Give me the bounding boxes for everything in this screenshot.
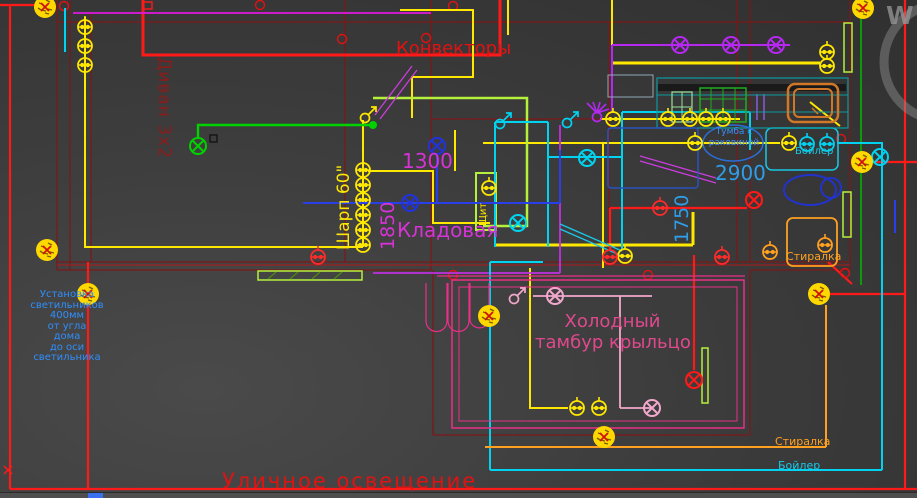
wiring-lightpink [533,296,652,408]
wiring-blue [303,125,895,233]
junction-box-symbol [478,305,500,327]
junction-box-symbol [34,0,56,18]
socket-symbol [606,108,620,126]
socket-symbol [688,132,702,150]
junction-box-symbol [808,283,830,305]
switch-symbol [496,113,512,129]
kitchen-counter [608,75,848,128]
light-symbol [746,192,762,208]
light-symbol [510,215,526,231]
socket-symbol [763,241,777,259]
junction-box-symbol [36,239,58,261]
window-bottom-edge [0,492,917,498]
socket-symbol [618,245,632,263]
porch-outline [426,276,745,428]
wiring-orange [485,218,837,447]
socket-symbols [78,16,834,415]
watermark-ring [884,4,917,120]
socket-symbol [818,234,832,252]
light-symbol [190,138,206,154]
switch-symbol [510,288,526,304]
taskbar-chip [88,493,103,498]
light-symbols [190,37,888,416]
junction-box-symbol [852,0,874,19]
socket-symbol [311,246,325,264]
socket-symbol [570,397,584,415]
socket-symbol [592,397,606,415]
socket-symbol [820,133,834,151]
junction-box-symbol [851,151,873,173]
socket-symbol [661,108,675,126]
socket-symbol [683,108,697,126]
socket-symbol [782,132,796,150]
socket-symbol [653,197,667,215]
socket-symbol [715,246,729,264]
junction-box-symbol [77,283,99,305]
wiring-chartreuse [258,23,852,403]
light-symbol [686,372,702,388]
junction-box-symbol [593,426,615,448]
socket-symbol [482,177,496,195]
switch-symbol [563,112,579,128]
cad-viewport[interactable]: Диван 3х2 Конвекторы Шарп 60" 1300 1850 … [0,0,917,498]
drawing-canvas[interactable] [0,0,917,498]
walls [57,0,850,435]
socket-symbol [800,133,814,151]
